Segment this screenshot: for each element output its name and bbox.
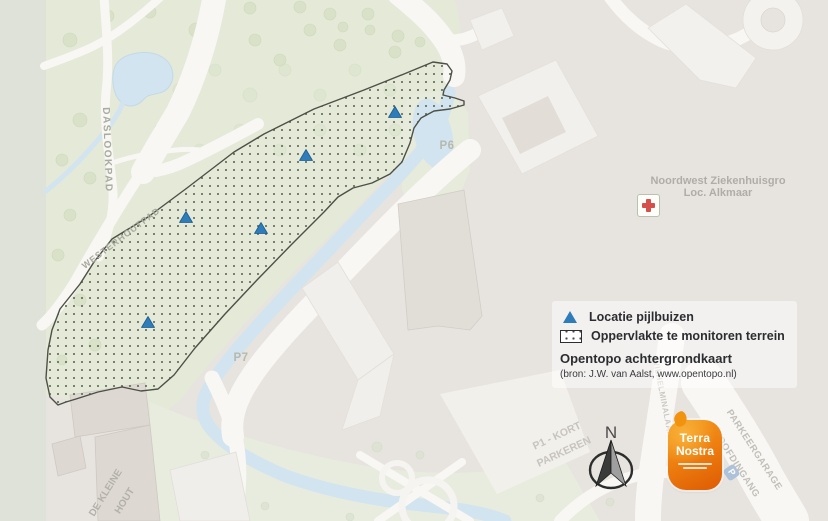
map-export-page: DASLOOKPAD WESTERHOUTPAD P6 P7 Noordwest… — [0, 0, 828, 521]
north-arrow-letter: N — [605, 423, 617, 442]
legend-source-title: Opentopo achtergrondkaart — [560, 351, 785, 366]
legend-item-monitor-area: Oppervlakte te monitoren terrein — [560, 329, 785, 343]
terra-nostra-logo: Terra Nostra — [668, 420, 722, 490]
parking-label-p7: P7 — [233, 352, 248, 364]
legend: Locatie pijlbuizen Oppervlakte te monito… — [552, 301, 797, 388]
dotted-area-icon — [560, 330, 582, 343]
legend-item-piezometers: Locatie pijlbuizen — [560, 310, 785, 324]
hospital-cross-icon — [637, 194, 660, 217]
legend-item-label: Oppervlakte te monitoren terrein — [591, 329, 785, 343]
parking-label-p6: P6 — [439, 140, 454, 152]
logo-tagline — [668, 463, 722, 469]
logo-text-line2: Nostra — [668, 445, 722, 458]
map-edge-strip — [0, 0, 46, 521]
legend-source-note: (bron: J.W. van Aalst, www.opentopo.nl) — [560, 369, 785, 380]
hospital-label-line1: Noordwest Ziekenhuisgro — [650, 175, 785, 187]
north-arrow-right-blade — [611, 440, 626, 486]
triangle-marker-icon — [563, 311, 577, 323]
north-arrow: N — [584, 423, 638, 493]
north-arrow-left-blade — [596, 440, 611, 486]
legend-item-label: Locatie pijlbuizen — [589, 310, 694, 324]
hospital-label-line2: Loc. Alkmaar — [684, 187, 753, 199]
